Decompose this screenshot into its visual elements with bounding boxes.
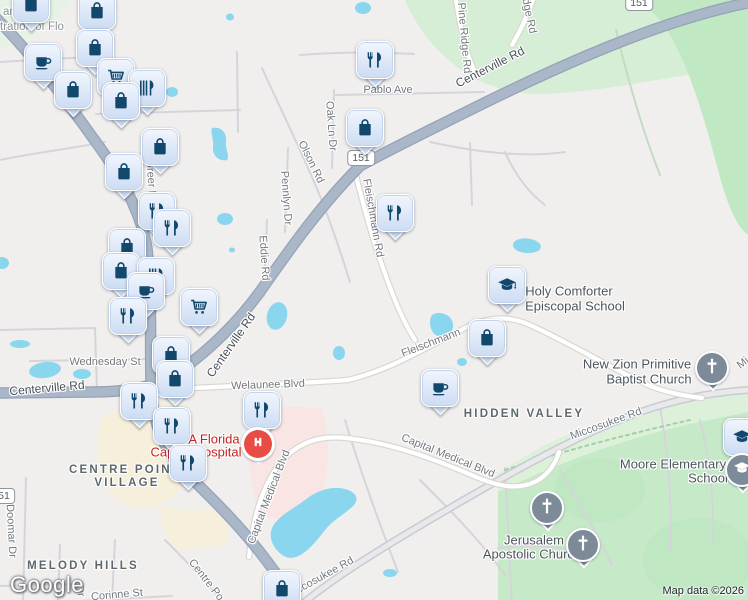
marker-shopping-bag[interactable] xyxy=(102,82,140,120)
map-attribution: Map data ©2026 xyxy=(663,585,745,597)
school-icon xyxy=(496,274,518,296)
label-holy-comforter[interactable]: Holy Comforter xyxy=(525,284,612,299)
label-melody-hills: MELODY HILLS xyxy=(27,560,139,572)
marker-school-dot[interactable] xyxy=(725,453,748,487)
coffee-icon xyxy=(429,377,451,399)
church-icon xyxy=(701,355,723,382)
route-shield-51: 51 xyxy=(0,488,15,504)
marker-restaurant[interactable] xyxy=(169,444,207,482)
marker-school[interactable] xyxy=(723,418,748,456)
shopping-bag-icon xyxy=(110,90,132,112)
restaurant-icon xyxy=(117,305,139,327)
marker-shopping-cart[interactable] xyxy=(180,288,218,326)
school-dot-icon xyxy=(731,457,748,484)
restaurant-icon xyxy=(161,415,183,437)
shopping-bag-icon xyxy=(84,37,106,59)
shopping-cart-icon xyxy=(188,296,210,318)
shopping-bag-icon xyxy=(86,0,108,22)
marker-shopping-bag[interactable] xyxy=(141,128,179,166)
map-canvas[interactable]: ard oftration of FloPablo AveOak Ln DrOl… xyxy=(0,0,748,600)
restaurant-icon xyxy=(177,452,199,474)
label-pablo-ave: Pablo Ave xyxy=(363,84,412,96)
shopping-bag-icon xyxy=(164,368,186,390)
label-school[interactable]: School xyxy=(688,471,728,486)
marker-restaurant[interactable] xyxy=(153,209,191,247)
label-wednesday-st: Wednesday St xyxy=(69,356,140,368)
label-baptist-church[interactable]: Baptist Church xyxy=(606,372,691,387)
marker-shopping-bag[interactable] xyxy=(78,0,116,30)
school-icon xyxy=(731,426,748,448)
marker-coffee[interactable] xyxy=(421,369,459,407)
church-icon xyxy=(572,532,594,559)
marker-shopping-bag[interactable] xyxy=(54,71,92,109)
marker-church[interactable] xyxy=(695,351,729,385)
shopping-bag-icon xyxy=(20,0,42,15)
marker-shopping-bag[interactable] xyxy=(156,360,194,398)
marker-shopping-bag[interactable] xyxy=(12,0,50,23)
shopping-bag-icon xyxy=(271,578,293,600)
route-shield-151: 151 xyxy=(347,150,375,166)
marker-restaurant[interactable] xyxy=(356,41,394,79)
coffee-icon xyxy=(32,51,54,73)
restaurant-icon xyxy=(384,202,406,224)
label-hidden-valley: HIDDEN VALLEY xyxy=(464,408,584,420)
label-village: VILLAGE xyxy=(94,477,159,489)
marker-hospital[interactable] xyxy=(241,427,275,461)
marker-shopping-bag[interactable] xyxy=(468,319,506,357)
shopping-bag-icon xyxy=(62,79,84,101)
label-new-zion-primitive[interactable]: New Zion Primitive xyxy=(583,357,691,372)
restaurant-icon xyxy=(251,399,273,421)
marker-church[interactable] xyxy=(566,528,600,562)
label-jerusalem[interactable]: Jerusalem xyxy=(504,533,564,548)
marker-shopping-bag[interactable] xyxy=(263,570,301,600)
label-episcopal-school[interactable]: Episcopal School xyxy=(525,299,625,314)
marker-shopping-bag[interactable] xyxy=(105,153,143,191)
marker-shopping-bag[interactable] xyxy=(346,109,384,147)
marker-school[interactable] xyxy=(488,266,526,304)
label-centre-point: CENTRE POINT xyxy=(69,464,181,476)
marker-restaurant[interactable] xyxy=(109,297,147,335)
label-moore-elementary[interactable]: Moore Elementary xyxy=(620,457,726,472)
route-shield-151: 151 xyxy=(625,0,653,11)
hospital-icon xyxy=(248,432,268,457)
shopping-bag-icon xyxy=(354,117,376,139)
restaurant-icon xyxy=(161,217,183,239)
google-logo[interactable]: Google xyxy=(10,572,84,598)
restaurant-icon xyxy=(364,49,386,71)
marker-restaurant[interactable] xyxy=(243,391,281,429)
church-icon xyxy=(536,495,558,522)
shopping-bag-icon xyxy=(476,327,498,349)
marker-restaurant[interactable] xyxy=(153,407,191,445)
marker-restaurant[interactable] xyxy=(376,194,414,232)
restaurant-icon xyxy=(128,390,150,412)
shopping-bag-icon xyxy=(149,136,171,158)
shopping-bag-icon xyxy=(113,161,135,183)
marker-church[interactable] xyxy=(530,491,564,525)
